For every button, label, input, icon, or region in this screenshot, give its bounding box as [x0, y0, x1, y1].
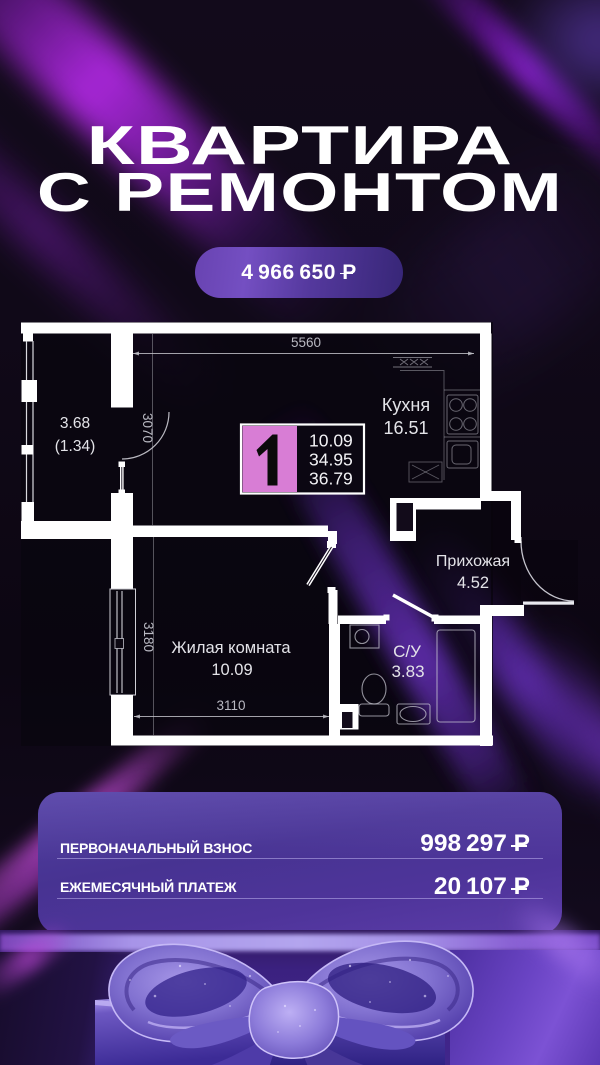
svg-text:36.79: 36.79	[309, 469, 353, 489]
svg-text:3110: 3110	[216, 698, 245, 713]
svg-text:С/У: С/У	[393, 642, 421, 661]
svg-text:3.83: 3.83	[391, 662, 424, 681]
svg-text:10.09: 10.09	[211, 661, 252, 679]
svg-text:(1.34): (1.34)	[55, 438, 96, 455]
svg-text:3070: 3070	[140, 413, 155, 443]
svg-text:16.51: 16.51	[383, 418, 428, 438]
svg-text:5560: 5560	[291, 335, 321, 350]
svg-text:Жилая комната: Жилая комната	[171, 639, 291, 657]
svg-text:10.09: 10.09	[309, 431, 353, 451]
svg-text:Прихожая: Прихожая	[436, 553, 510, 570]
svg-text:Кухня: Кухня	[382, 395, 430, 415]
svg-text:3.68: 3.68	[60, 415, 90, 432]
svg-text:4.52: 4.52	[457, 574, 489, 592]
svg-text:34.95: 34.95	[309, 450, 353, 470]
svg-text:3180: 3180	[141, 622, 156, 652]
